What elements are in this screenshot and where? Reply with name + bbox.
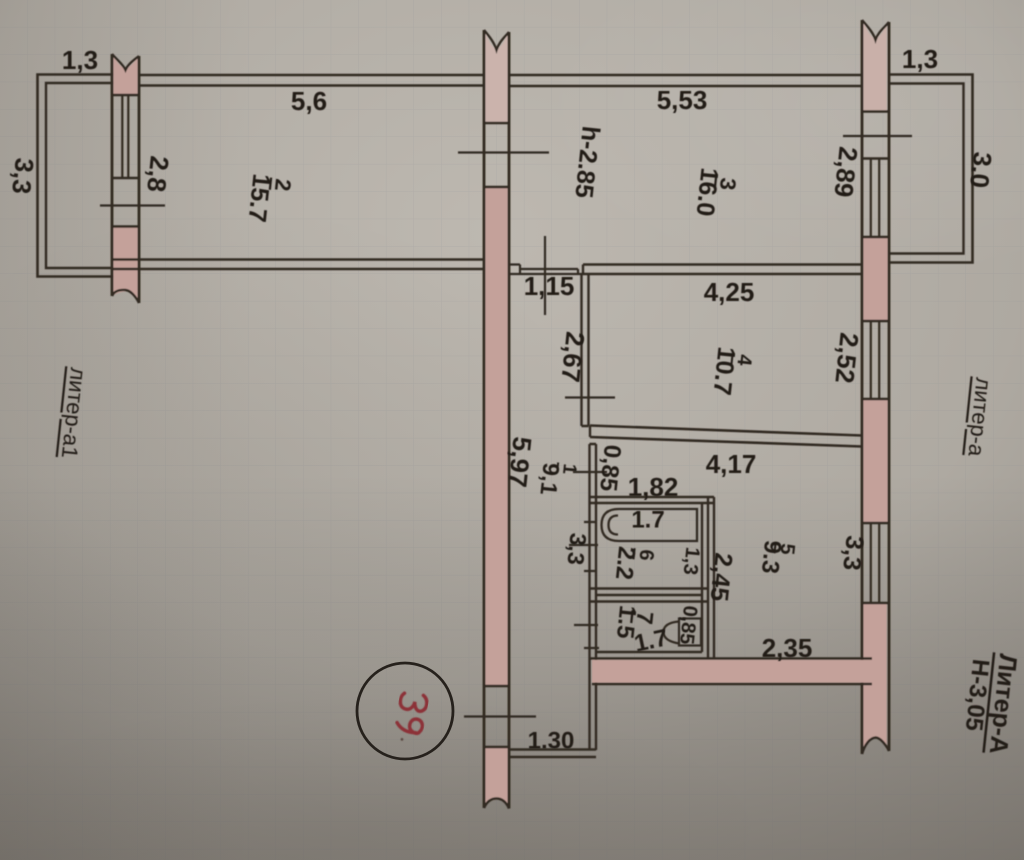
svg-text:2.2: 2.2 xyxy=(610,545,640,581)
svg-text:1,3: 1,3 xyxy=(679,546,704,576)
svg-text:9,1: 9,1 xyxy=(535,462,564,497)
svg-text:1,3: 1,3 xyxy=(902,44,938,74)
svg-text:9.3: 9.3 xyxy=(756,539,786,575)
svg-text:2,89: 2,89 xyxy=(828,145,863,198)
svg-text:2,45: 2,45 xyxy=(705,551,738,602)
svg-text:1,15: 1,15 xyxy=(524,271,575,301)
svg-text:4,25: 4,25 xyxy=(704,277,755,307)
svg-text:3,3: 3,3 xyxy=(6,156,40,195)
svg-text:2,52: 2,52 xyxy=(829,331,864,384)
svg-text:3,3: 3,3 xyxy=(562,532,591,567)
svg-text:1.30: 1.30 xyxy=(528,728,575,755)
svg-text:10.7: 10.7 xyxy=(708,345,741,396)
svg-text:5,97: 5,97 xyxy=(502,435,537,488)
svg-text:1,3: 1,3 xyxy=(62,45,98,75)
svg-text:5,6: 5,6 xyxy=(291,86,327,116)
svg-text:1,82: 1,82 xyxy=(628,472,679,502)
svg-text:4,17: 4,17 xyxy=(706,449,757,479)
svg-text:2,67: 2,67 xyxy=(555,330,590,383)
svg-text:0,85: 0,85 xyxy=(675,604,701,645)
svg-text:2,35: 2,35 xyxy=(762,633,813,663)
svg-text:2,8: 2,8 xyxy=(141,154,175,193)
svg-text:15.7: 15.7 xyxy=(243,172,276,223)
svg-text:0,85: 0,85 xyxy=(594,443,626,492)
svg-text:5,53: 5,53 xyxy=(657,85,708,115)
svg-text:3,3: 3,3 xyxy=(837,534,868,572)
svg-text:1.7: 1.7 xyxy=(631,507,664,534)
svg-text:1.5: 1.5 xyxy=(611,604,641,640)
svg-text:3.0: 3.0 xyxy=(964,150,998,189)
svg-text:16.0: 16.0 xyxy=(691,166,724,217)
